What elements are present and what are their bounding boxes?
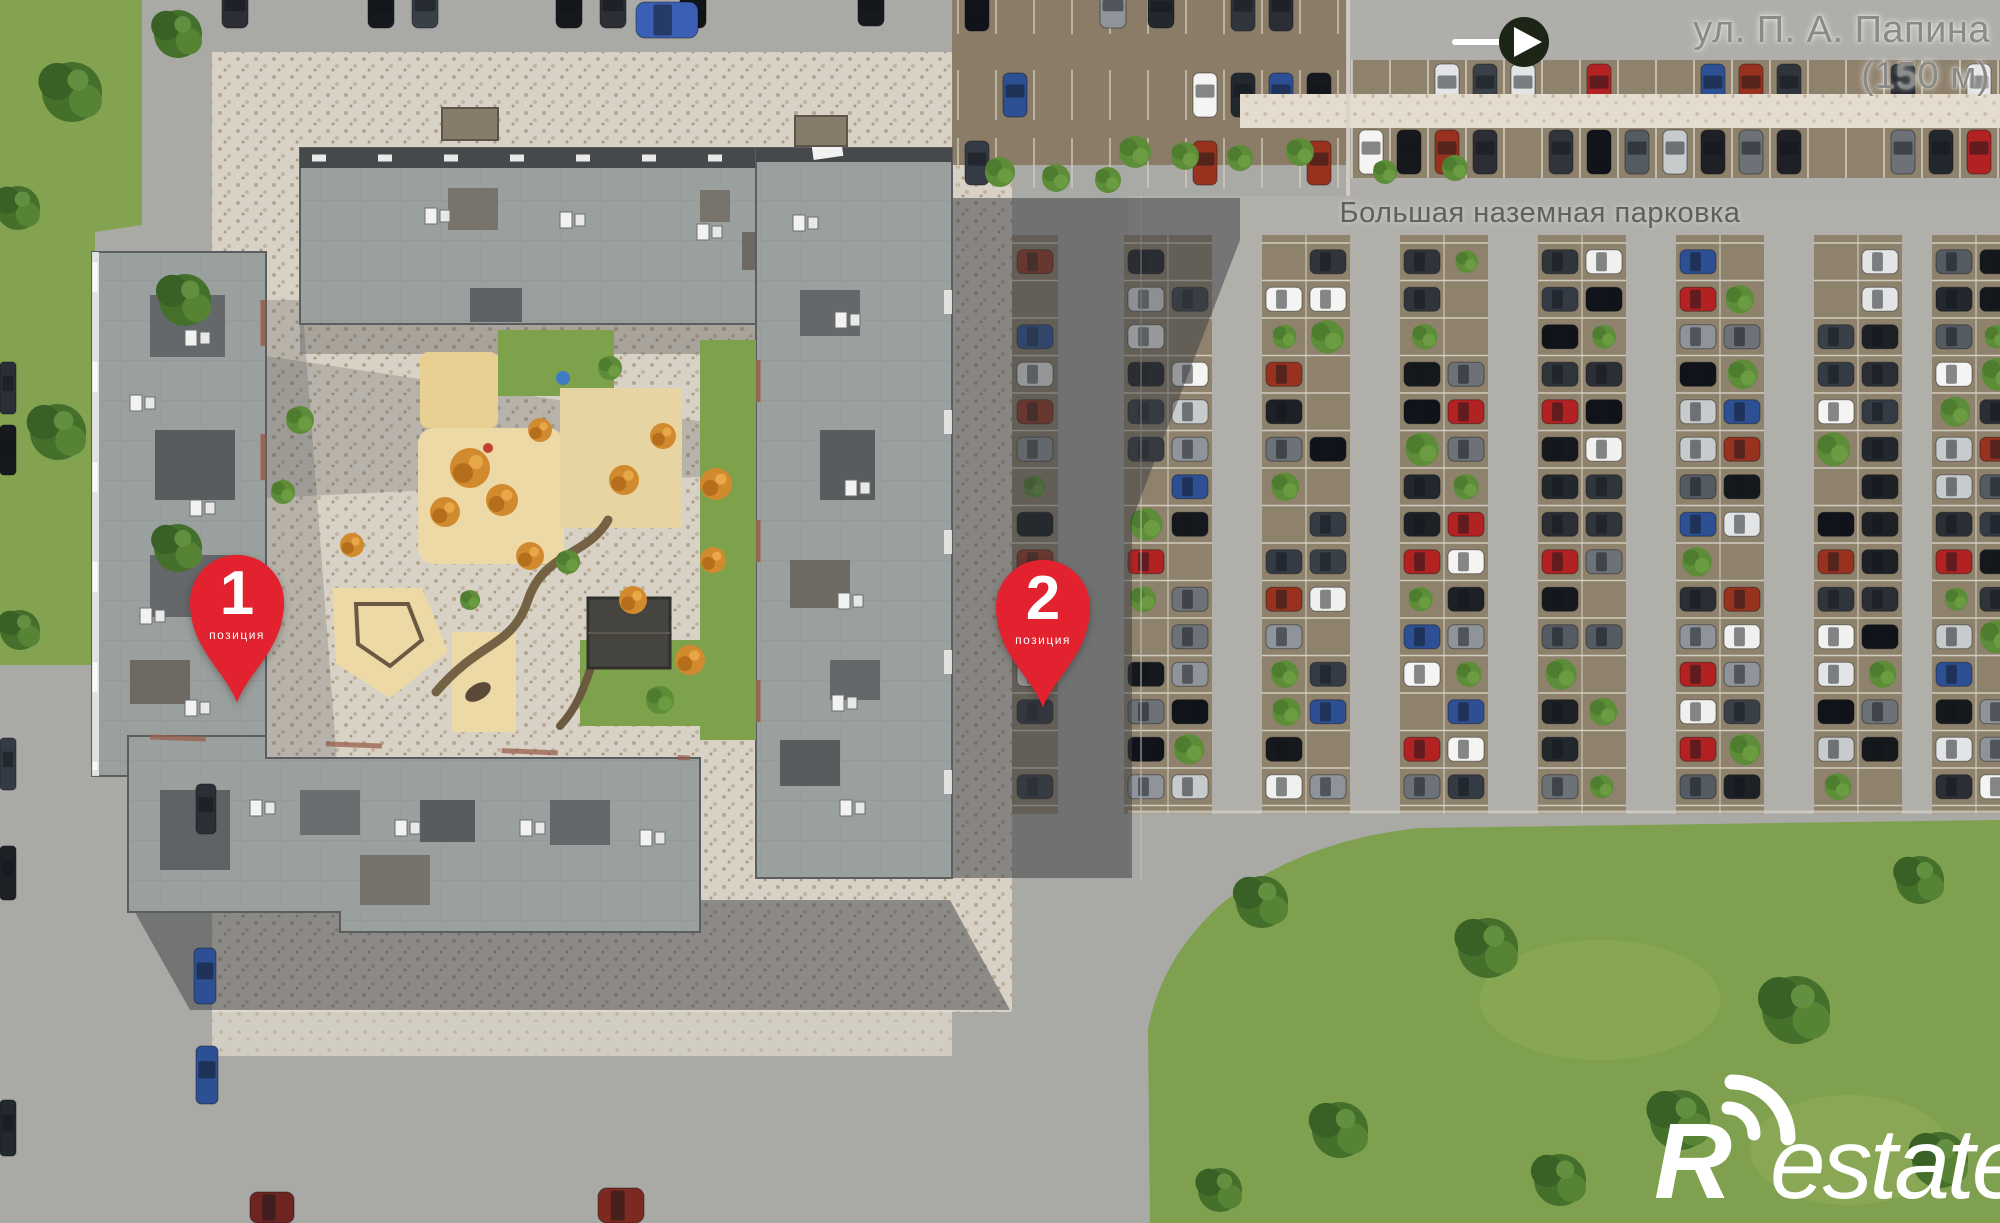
car xyxy=(1266,625,1302,649)
car xyxy=(858,0,884,26)
car xyxy=(1586,362,1622,386)
car xyxy=(1128,775,1164,799)
bush xyxy=(1817,432,1851,466)
car xyxy=(1680,325,1716,349)
car xyxy=(1128,700,1164,724)
hvac-unit xyxy=(560,212,585,228)
car xyxy=(1680,400,1716,424)
car xyxy=(1404,250,1440,274)
hvac-unit xyxy=(130,395,155,411)
car xyxy=(1980,550,2000,574)
bush xyxy=(1095,167,1121,193)
pin-1-caption: позиция xyxy=(181,628,293,642)
autumn-tree xyxy=(700,468,732,500)
bush xyxy=(1454,474,1479,499)
car xyxy=(1172,512,1208,536)
car xyxy=(1542,250,1578,274)
car xyxy=(1404,362,1440,386)
car xyxy=(368,0,394,28)
car xyxy=(1266,737,1302,761)
car xyxy=(1266,775,1302,799)
car xyxy=(1448,362,1484,386)
car xyxy=(1266,400,1302,424)
car xyxy=(1404,662,1440,686)
car xyxy=(1266,287,1302,311)
car xyxy=(1680,287,1716,311)
car xyxy=(0,362,16,414)
car xyxy=(1172,700,1208,724)
car xyxy=(1680,587,1716,611)
car xyxy=(1680,700,1716,724)
bush xyxy=(598,356,622,380)
car xyxy=(1818,587,1854,611)
car xyxy=(1862,325,1898,349)
bush xyxy=(1373,160,1397,184)
car xyxy=(1818,662,1854,686)
car xyxy=(1310,287,1346,311)
car xyxy=(1448,587,1484,611)
pergola xyxy=(442,108,498,140)
car xyxy=(600,0,626,28)
car xyxy=(965,141,989,185)
bush xyxy=(1590,775,1614,799)
car xyxy=(1448,737,1484,761)
car xyxy=(1542,625,1578,649)
car xyxy=(1818,550,1854,574)
car xyxy=(1172,400,1208,424)
car xyxy=(1818,625,1854,649)
car xyxy=(1404,400,1440,424)
car xyxy=(1542,512,1578,536)
car xyxy=(1980,400,2000,424)
car xyxy=(1739,130,1763,174)
car xyxy=(1003,73,1027,117)
car xyxy=(1586,250,1622,274)
car xyxy=(1980,775,2000,799)
autumn-tree xyxy=(619,586,647,614)
car xyxy=(1448,775,1484,799)
bush xyxy=(1442,155,1468,181)
car xyxy=(1891,130,1915,174)
car xyxy=(1128,737,1164,761)
car xyxy=(1862,475,1898,499)
car xyxy=(1542,362,1578,386)
car xyxy=(1967,130,1991,174)
hvac-unit xyxy=(395,820,420,836)
car xyxy=(1724,700,1760,724)
car xyxy=(1701,130,1725,174)
autumn-tree xyxy=(516,542,544,570)
bush xyxy=(1286,138,1314,166)
bush xyxy=(1456,662,1481,687)
car xyxy=(222,0,248,28)
autumn-tree xyxy=(486,484,518,516)
car xyxy=(1404,512,1440,536)
hvac-unit xyxy=(425,208,450,224)
car xyxy=(1818,362,1854,386)
car xyxy=(1310,512,1346,536)
car xyxy=(1448,512,1484,536)
pin-2-number: 2 xyxy=(987,568,1099,630)
car xyxy=(1862,400,1898,424)
car xyxy=(1980,700,2000,724)
bush xyxy=(1271,473,1299,501)
car xyxy=(1936,700,1972,724)
car xyxy=(1542,550,1578,574)
car xyxy=(0,846,16,900)
car xyxy=(1266,550,1302,574)
car xyxy=(1980,737,2000,761)
car xyxy=(1542,737,1578,761)
car xyxy=(1542,437,1578,461)
building-2 xyxy=(756,134,952,878)
car xyxy=(1724,512,1760,536)
hvac-unit xyxy=(845,480,870,496)
watermark-text: estate xyxy=(1770,1108,2000,1220)
car xyxy=(1862,287,1898,311)
position-pin-2[interactable]: 2 позиция xyxy=(987,553,1099,710)
car xyxy=(1542,325,1578,349)
sidewalk-strip xyxy=(212,1010,952,1056)
car xyxy=(1310,662,1346,686)
car xyxy=(1397,130,1421,174)
bush xyxy=(1825,773,1852,800)
bush xyxy=(1455,250,1478,273)
car xyxy=(1448,625,1484,649)
car xyxy=(1680,250,1716,274)
car xyxy=(1936,325,1972,349)
car xyxy=(1266,362,1302,386)
car xyxy=(1680,625,1716,649)
car xyxy=(1266,587,1302,611)
car xyxy=(1936,362,1972,386)
bush xyxy=(460,590,480,610)
car xyxy=(1473,130,1497,174)
pin-2-caption: позиция xyxy=(987,633,1099,647)
car xyxy=(1980,512,2000,536)
bush xyxy=(1729,733,1761,765)
car xyxy=(1936,625,1972,649)
car xyxy=(1724,625,1760,649)
bush xyxy=(1405,433,1438,466)
car xyxy=(1862,737,1898,761)
car xyxy=(1269,0,1293,31)
car xyxy=(1128,550,1164,574)
car xyxy=(1980,587,2000,611)
bush xyxy=(1546,659,1577,690)
street-name: ул. П. А. Папина xyxy=(1693,8,1990,54)
car xyxy=(1542,587,1578,611)
car xyxy=(1404,775,1440,799)
car xyxy=(1586,550,1622,574)
car xyxy=(1724,775,1760,799)
car xyxy=(1310,250,1346,274)
car xyxy=(1862,550,1898,574)
car xyxy=(1680,437,1716,461)
car xyxy=(1310,550,1346,574)
hvac-unit xyxy=(140,608,165,624)
car xyxy=(1936,512,1972,536)
play-equipment xyxy=(556,371,570,385)
car xyxy=(1172,775,1208,799)
car xyxy=(1777,130,1801,174)
pergola xyxy=(795,116,847,146)
car xyxy=(1862,437,1898,461)
street-label: ул. П. А. Папина (150 м) xyxy=(1693,8,1990,99)
bush xyxy=(286,406,314,434)
street-distance: (150 м) xyxy=(1693,54,1990,100)
bush xyxy=(646,686,674,714)
car xyxy=(1680,362,1716,386)
car xyxy=(1310,775,1346,799)
car xyxy=(1172,475,1208,499)
car xyxy=(636,2,698,38)
car xyxy=(1980,250,2000,274)
bush xyxy=(1412,324,1438,350)
hvac-unit xyxy=(520,820,545,836)
bush xyxy=(1130,586,1156,612)
car xyxy=(1586,475,1622,499)
car xyxy=(1404,475,1440,499)
car xyxy=(1862,250,1898,274)
play-equipment xyxy=(483,443,493,453)
car xyxy=(1128,662,1164,686)
bush xyxy=(1589,698,1617,726)
car xyxy=(1586,437,1622,461)
car xyxy=(1663,130,1687,174)
car xyxy=(598,1188,644,1223)
car xyxy=(1724,400,1760,424)
car xyxy=(1587,130,1611,174)
autumn-tree xyxy=(609,465,639,495)
tree xyxy=(0,610,40,650)
autumn-tree xyxy=(430,497,460,527)
bush xyxy=(1940,397,1970,427)
hvac-unit xyxy=(185,330,210,346)
watermark-logo: R estate xyxy=(1650,1072,2000,1223)
car xyxy=(1936,737,1972,761)
car xyxy=(1980,475,2000,499)
bush xyxy=(1119,136,1151,168)
bush xyxy=(1227,145,1253,171)
car xyxy=(1193,73,1217,117)
hvac-unit xyxy=(190,500,215,516)
car xyxy=(1862,362,1898,386)
car xyxy=(1980,287,2000,311)
car xyxy=(1542,400,1578,424)
car xyxy=(1818,400,1854,424)
hvac-unit xyxy=(832,695,857,711)
car xyxy=(1172,587,1208,611)
bush xyxy=(1311,320,1344,353)
car xyxy=(1448,550,1484,574)
car xyxy=(1724,437,1760,461)
car xyxy=(1724,587,1760,611)
car xyxy=(1448,400,1484,424)
bush xyxy=(1409,587,1433,611)
car xyxy=(1586,287,1622,311)
car xyxy=(1172,625,1208,649)
car xyxy=(412,0,438,28)
car xyxy=(0,425,16,475)
hvac-unit xyxy=(793,215,818,231)
car xyxy=(1980,437,2000,461)
car xyxy=(1680,662,1716,686)
bush xyxy=(1869,661,1896,688)
car xyxy=(1586,625,1622,649)
car xyxy=(1172,662,1208,686)
parking-label: Большая наземная парковка xyxy=(1280,197,1800,230)
car xyxy=(1542,775,1578,799)
car xyxy=(1404,550,1440,574)
watermark-initial: R xyxy=(1654,1100,1732,1221)
hvac-unit xyxy=(250,800,275,816)
hvac-unit xyxy=(840,800,865,816)
car xyxy=(556,0,582,28)
car xyxy=(0,1100,16,1156)
car xyxy=(1310,437,1346,461)
car xyxy=(1266,437,1302,461)
car xyxy=(1625,130,1649,174)
car xyxy=(1929,130,1953,174)
position-pin-1[interactable]: 1 позиция xyxy=(181,548,293,705)
car xyxy=(1936,775,1972,799)
car xyxy=(196,1046,218,1104)
site-plan: ул. П. А. Папина (150 м) Большая наземна… xyxy=(0,0,2000,1223)
car xyxy=(1148,0,1174,28)
autumn-tree xyxy=(340,533,364,557)
pin-1-number: 1 xyxy=(181,563,293,625)
car xyxy=(0,738,16,790)
autumn-tree xyxy=(700,547,726,573)
bush xyxy=(1271,660,1299,688)
car xyxy=(1310,587,1346,611)
car xyxy=(1936,287,1972,311)
car xyxy=(1680,737,1716,761)
car xyxy=(1680,475,1716,499)
car xyxy=(1862,625,1898,649)
car xyxy=(1404,625,1440,649)
car xyxy=(1448,700,1484,724)
car xyxy=(1818,700,1854,724)
hvac-unit xyxy=(835,312,860,328)
car xyxy=(1936,250,1972,274)
hvac-unit xyxy=(697,224,722,240)
car xyxy=(1818,325,1854,349)
car xyxy=(1936,437,1972,461)
bush xyxy=(1171,142,1199,170)
autumn-tree xyxy=(675,645,705,675)
bush xyxy=(1272,698,1300,726)
bush xyxy=(271,480,295,504)
car xyxy=(1172,437,1208,461)
car xyxy=(196,784,216,834)
bush xyxy=(1592,325,1616,349)
car xyxy=(1586,400,1622,424)
hvac-unit xyxy=(640,830,665,846)
car xyxy=(1542,287,1578,311)
car xyxy=(1542,475,1578,499)
bush xyxy=(1273,325,1297,349)
car xyxy=(250,1192,294,1223)
car xyxy=(1231,0,1255,31)
bush xyxy=(1174,734,1204,764)
bush xyxy=(556,550,580,574)
car xyxy=(1862,512,1898,536)
car xyxy=(1100,0,1126,28)
car xyxy=(1724,325,1760,349)
autumn-tree xyxy=(450,448,490,488)
car xyxy=(1936,550,1972,574)
bush xyxy=(1042,164,1070,192)
hvac-unit xyxy=(838,593,863,609)
bush xyxy=(1682,547,1712,577)
car xyxy=(1936,662,1972,686)
car xyxy=(1542,700,1578,724)
bush xyxy=(1726,285,1755,314)
car xyxy=(1549,130,1573,174)
car xyxy=(1448,437,1484,461)
car xyxy=(1724,475,1760,499)
car xyxy=(1680,775,1716,799)
car xyxy=(1862,587,1898,611)
car xyxy=(1724,662,1760,686)
car xyxy=(965,0,989,31)
car xyxy=(1862,700,1898,724)
car xyxy=(1818,737,1854,761)
bush xyxy=(1728,359,1758,389)
car xyxy=(1680,512,1716,536)
car xyxy=(1404,737,1440,761)
car xyxy=(1936,475,1972,499)
car xyxy=(194,948,216,1004)
car xyxy=(1586,512,1622,536)
autumn-tree xyxy=(528,418,552,442)
autumn-tree xyxy=(650,423,676,449)
bush xyxy=(985,157,1015,187)
car xyxy=(1404,287,1440,311)
car xyxy=(1818,512,1854,536)
bush xyxy=(1945,588,1968,611)
car xyxy=(1310,700,1346,724)
